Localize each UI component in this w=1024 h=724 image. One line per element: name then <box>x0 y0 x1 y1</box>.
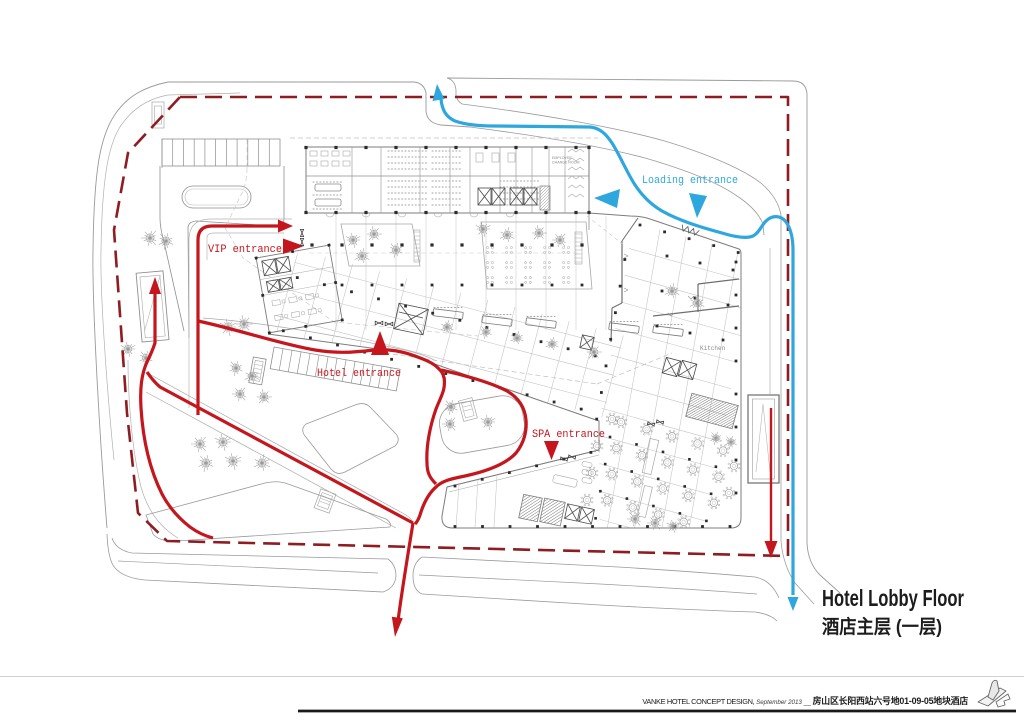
svg-text:SPA entrance: SPA entrance <box>532 429 605 441</box>
svg-text:VIP entrance: VIP entrance <box>208 244 282 256</box>
svg-text:CHANGE ROOM: CHANGE ROOM <box>552 161 580 165</box>
svg-text:Hotel entrance: Hotel entrance <box>317 368 401 380</box>
svg-text:Kitchen: Kitchen <box>700 345 726 352</box>
svg-text:EMPLOYEE: EMPLOYEE <box>552 156 572 160</box>
svg-text:Hotel Lobby Floor: Hotel Lobby Floor <box>822 585 964 611</box>
svg-text:酒店主层 (一层): 酒店主层 (一层) <box>822 615 942 638</box>
svg-text:Loading entrance: Loading entrance <box>642 175 738 187</box>
